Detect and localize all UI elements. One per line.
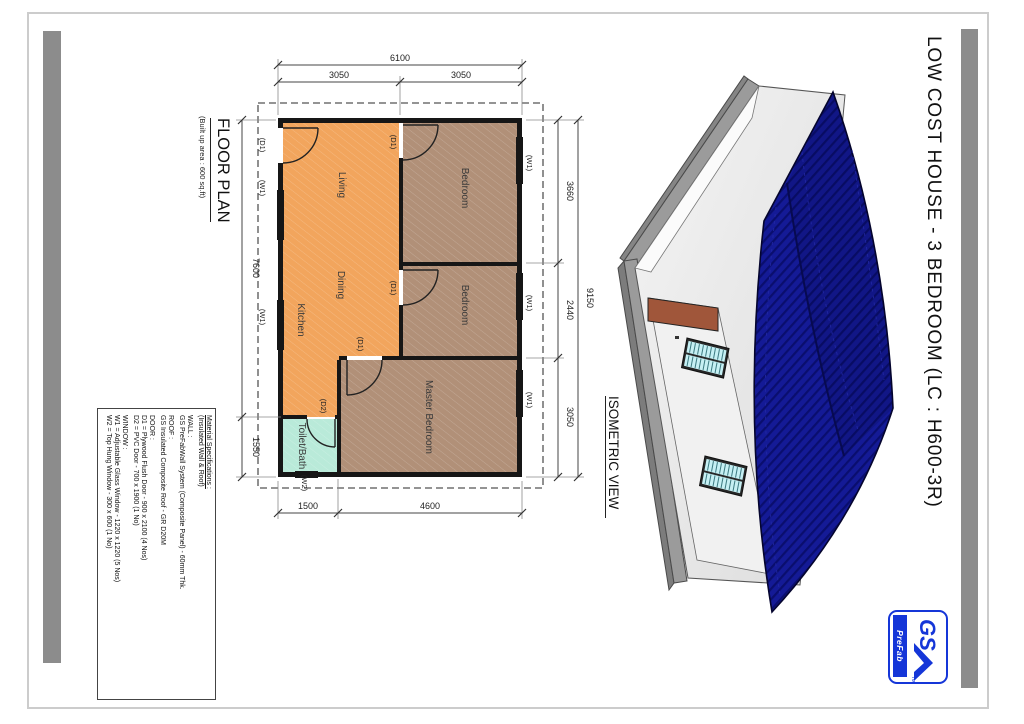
tag-d1-bedroom2: (D1)	[389, 281, 398, 296]
dim-right-c: 3050	[565, 407, 575, 427]
tag-d1-entrance: (D1)	[258, 138, 267, 153]
room-label-kitchen: Kitchen	[295, 303, 306, 336]
isometric-house	[618, 76, 893, 612]
dim-left-b: 1550	[251, 437, 261, 457]
logo-prefab-text: PreFab	[893, 615, 907, 677]
tag-w1-bedroom2: (W1)	[525, 295, 534, 312]
room-label-living: Living	[336, 172, 347, 198]
material-specifications-box: Material Specifications : (Insulated Wal…	[97, 408, 216, 700]
spec-line: Material Specifications :	[204, 415, 212, 693]
tag-w1-kitchen: (W1)	[258, 309, 267, 326]
spec-line: D2 = PVC Door - 700 x 1900 (1 No)	[131, 415, 139, 693]
wall-vent	[675, 336, 679, 339]
spec-line: W2 = Top Hung Window - 300 x 600 (1 No)	[104, 415, 112, 693]
spec-line: D1 = Plywood Flush Door - 900 x 2100 (4 …	[139, 415, 147, 693]
dim-top-b: 3050	[451, 70, 471, 80]
spec-line: WINDOW :	[120, 415, 128, 693]
gs-prefab-logo: GS PreFab TM	[888, 610, 948, 684]
floor-plan-title: FLOOR PLAN	[210, 118, 232, 222]
room-label-bedroom2: Bedroom	[459, 285, 470, 326]
tag-w1-master: (W1)	[525, 392, 534, 409]
window-w1-bedroom2	[516, 273, 523, 320]
room-label-toilet: Toilet/Bath	[296, 423, 307, 470]
isometric-view-title: ISOMETRIC VIEW	[605, 396, 621, 518]
spec-line: (Insulated Wall & Roof)	[196, 415, 204, 693]
sheet-title: LOW COST HOUSE - 3 BEDROOM (LC : H600-3R…	[920, 36, 944, 506]
tag-d1-master: (D1)	[356, 337, 365, 352]
window-w1-master	[516, 370, 523, 417]
room-label-bedroom1: Bedroom	[459, 168, 470, 209]
tag-w1-living: (W1)	[258, 180, 267, 197]
tag-d2-toilet: (D2)	[319, 399, 328, 414]
room-label-master: Master Bedroom	[423, 380, 434, 454]
dim-top-a: 3050	[329, 70, 349, 80]
dim-top-total: 6100	[390, 53, 410, 63]
spec-line: DOOR :	[147, 415, 155, 693]
spec-line: GS Insulated Composite Roof - GR D20M	[158, 415, 166, 693]
window-w1-kitchen	[277, 300, 284, 350]
dim-left-a: 7600	[251, 258, 261, 278]
floor-plan-subtitle: (Built up area : 600 sq.ft)	[196, 116, 207, 216]
spec-line: W1 = Adjustable Glass Window - 1220 x 12…	[112, 415, 120, 693]
window-w1-living	[277, 190, 284, 240]
room-label-dining: Dining	[335, 271, 346, 299]
spec-line: WALL :	[185, 415, 193, 693]
tag-d1-bedroom1: (D1)	[389, 135, 398, 150]
spec-line: ROOF :	[166, 415, 174, 693]
dim-right-b: 2440	[565, 300, 575, 320]
logo-tm-mark: TM	[911, 676, 916, 683]
drawing-sheet: Living Dining Kitchen Bedroom Bedroom Ma…	[0, 0, 1024, 724]
tag-w2-toilet: (W2)	[300, 475, 309, 492]
floor-plan: Living Dining Kitchen Bedroom Bedroom Ma…	[236, 53, 595, 519]
tag-w1-bedroom1: (W1)	[525, 155, 534, 172]
dim-right-a: 3660	[565, 181, 575, 201]
dim-right-total: 9150	[585, 288, 595, 308]
spec-line: GS PreFabWall System (Composite Panel) -…	[177, 415, 185, 693]
dim-bottom-b: 4600	[420, 501, 440, 511]
window-w1-bedroom1	[516, 137, 523, 184]
dim-bottom-a: 1500	[298, 501, 318, 511]
